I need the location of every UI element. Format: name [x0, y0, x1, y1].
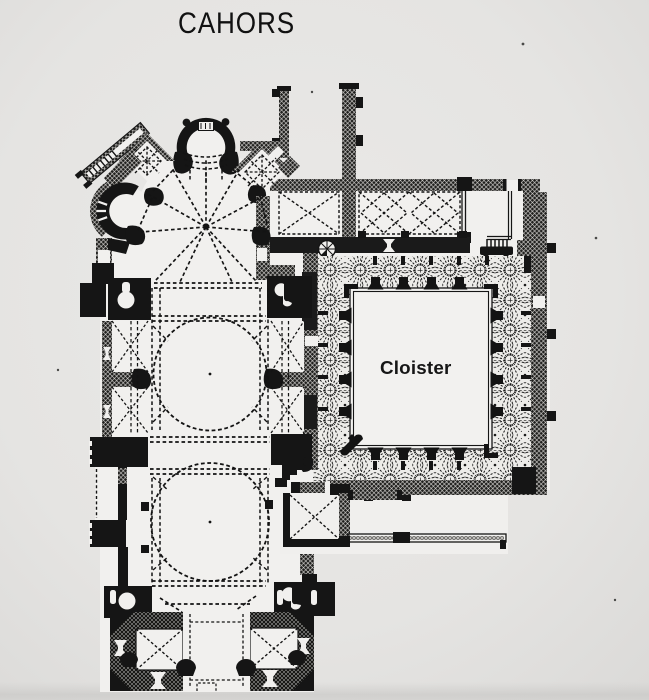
svg-text:CAHORS: CAHORS [178, 7, 295, 40]
svg-text:Cloister: Cloister [380, 357, 452, 378]
